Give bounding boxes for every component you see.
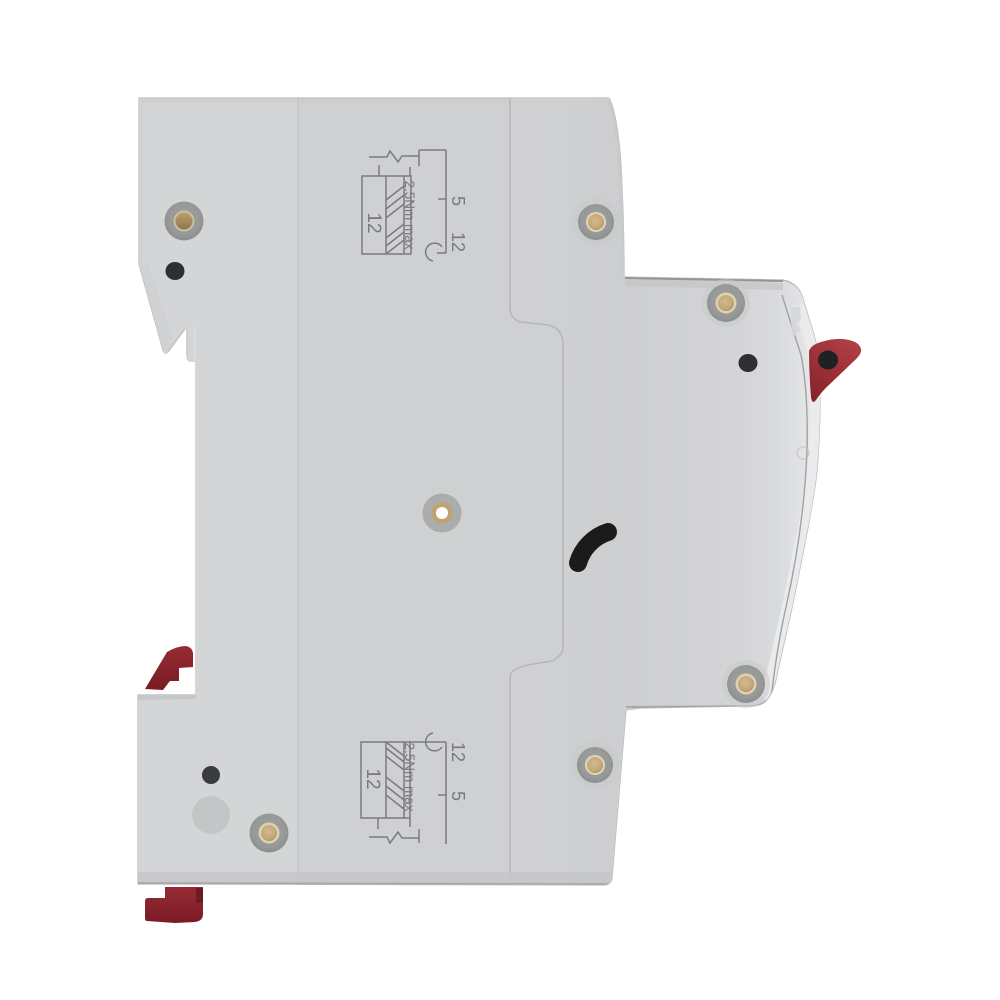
svg-text:12: 12 xyxy=(362,768,383,789)
svg-text:2.5Nm max: 2.5Nm max xyxy=(402,180,417,249)
svg-text:12: 12 xyxy=(448,232,468,252)
svg-text:12: 12 xyxy=(448,742,468,762)
svg-text:12: 12 xyxy=(363,212,384,233)
svg-text:5: 5 xyxy=(448,196,468,206)
svg-text:2.5Nm max: 2.5Nm max xyxy=(402,742,417,811)
svg-text:5: 5 xyxy=(448,791,468,801)
